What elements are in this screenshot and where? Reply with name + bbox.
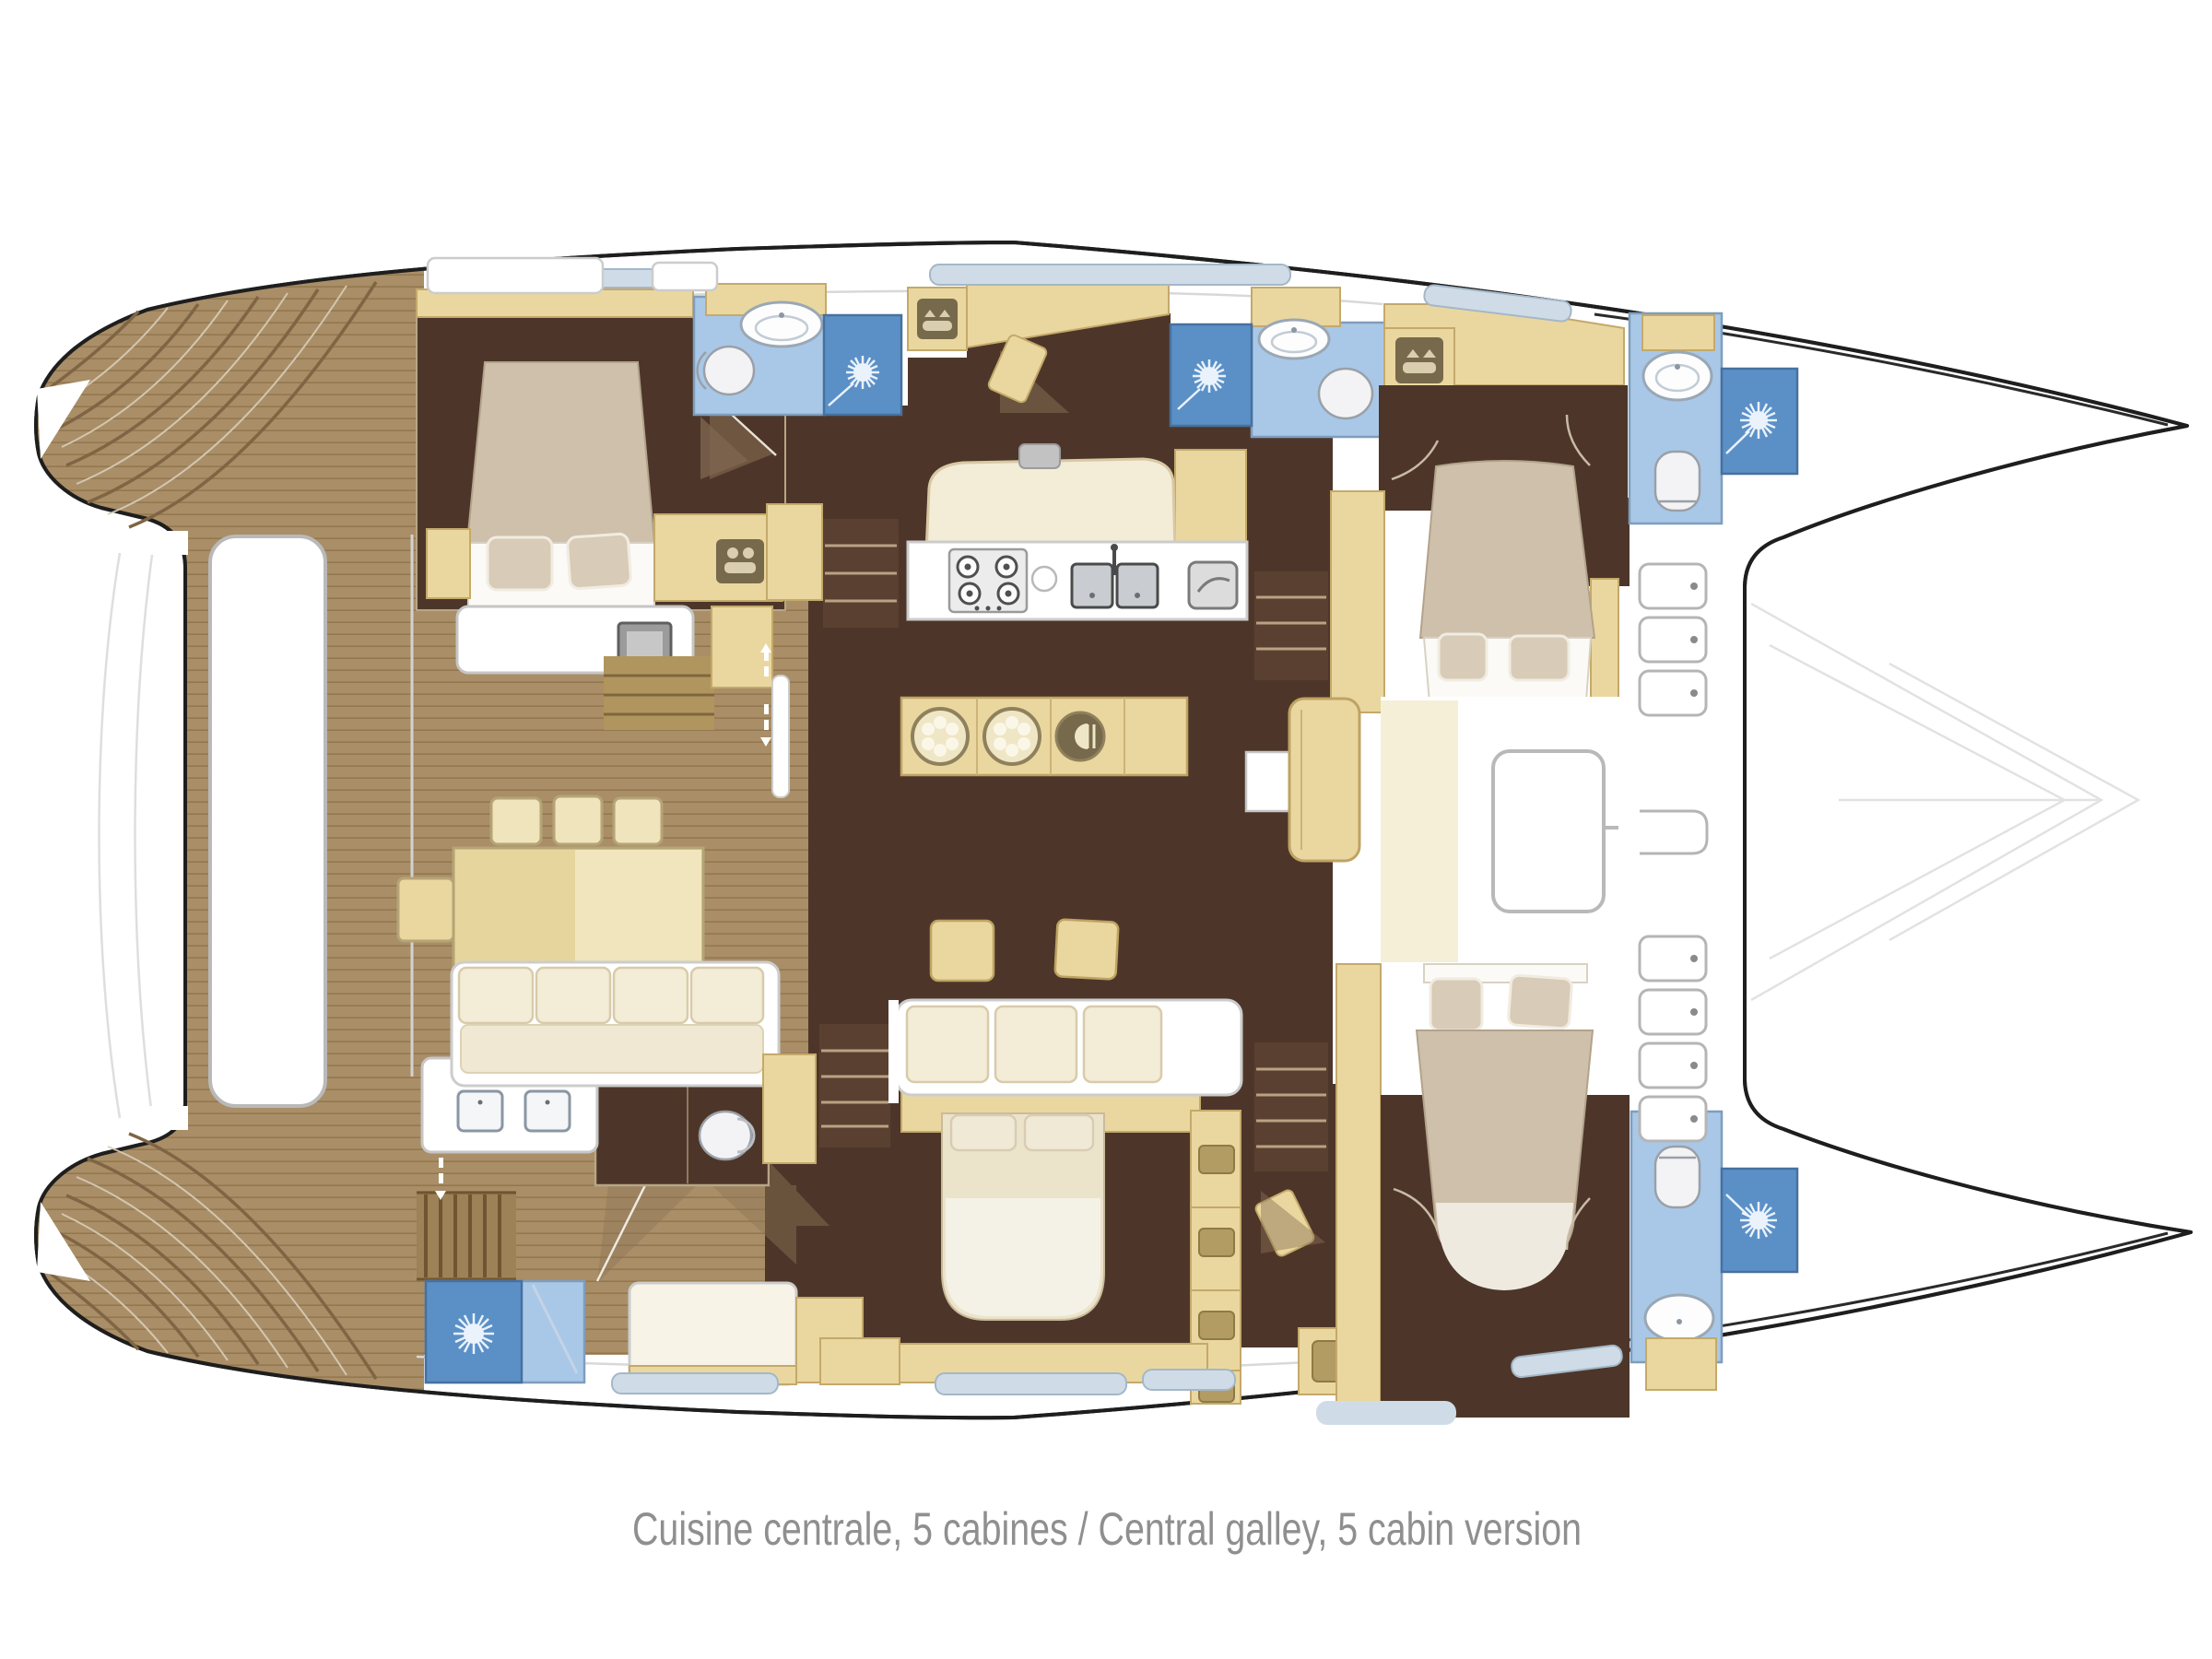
svg-text:Cuisine centrale, 5 cabines /: Cuisine centrale, 5 cabines / Central ga… (632, 1503, 1582, 1555)
